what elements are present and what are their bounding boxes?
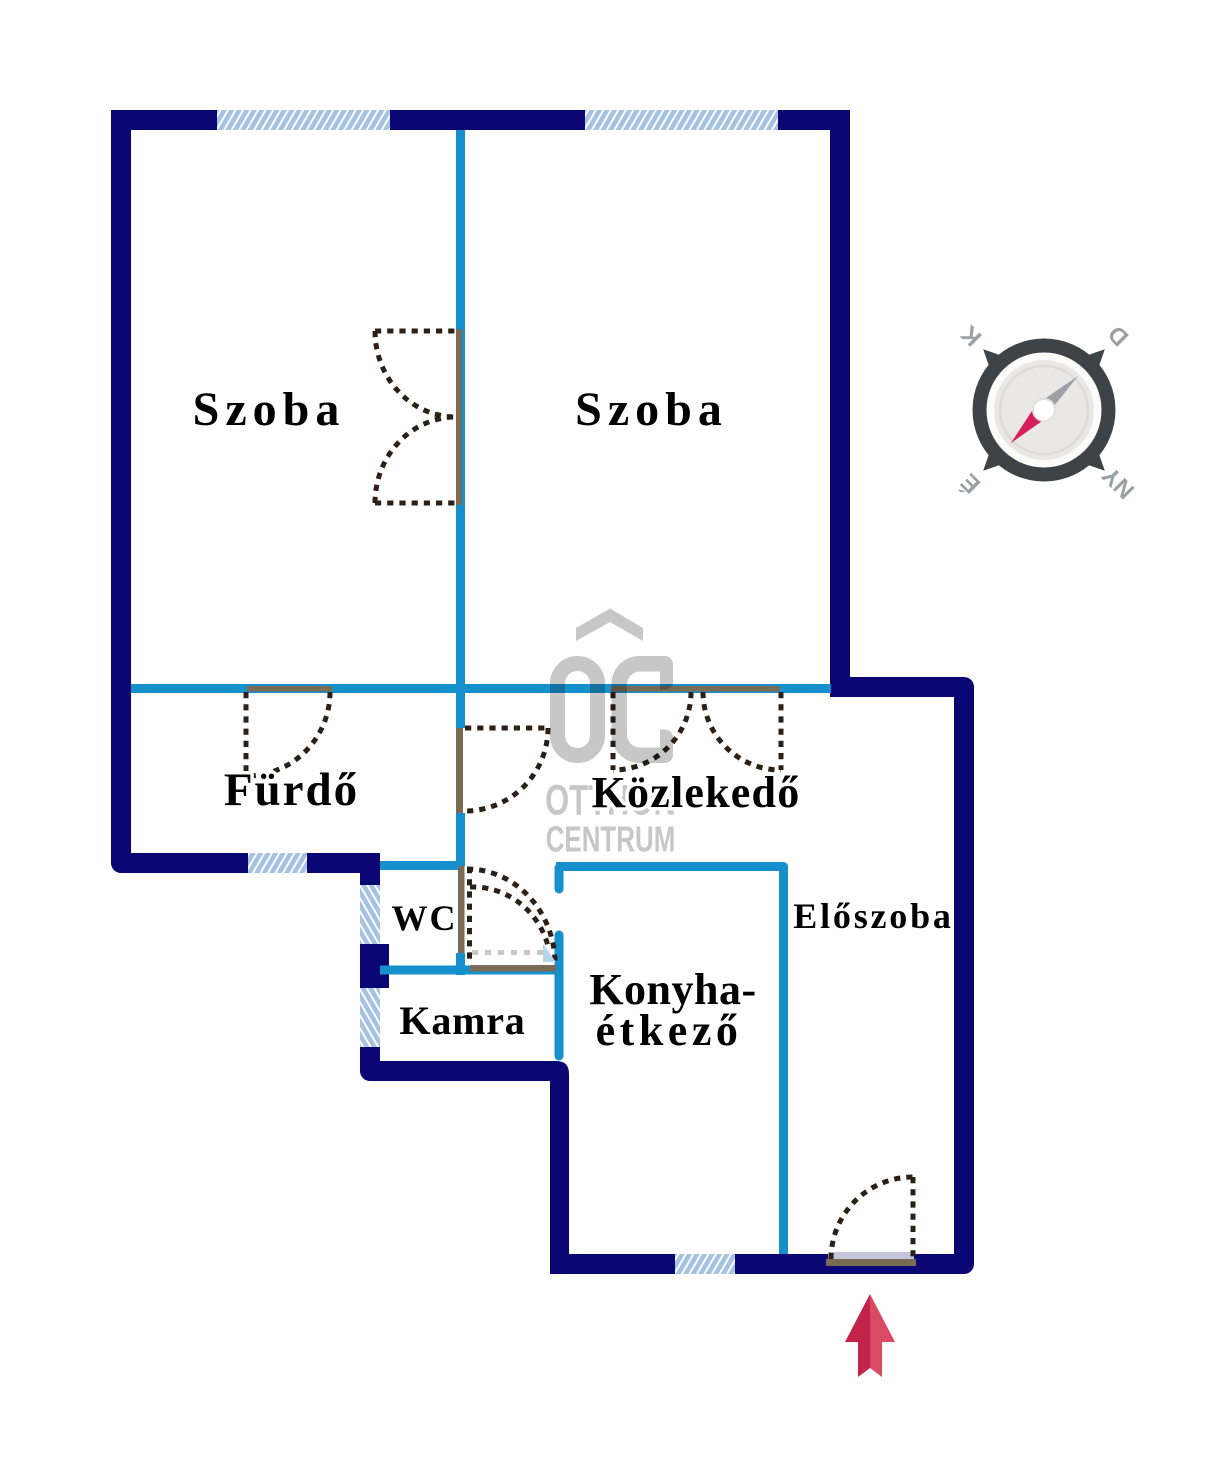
svg-text:Fürdő: Fürdő	[224, 764, 359, 816]
svg-text:Szoba: Szoba	[575, 383, 728, 436]
svg-text:CENTRUM: CENTRUM	[546, 819, 676, 859]
svg-text:étkező: étkező	[596, 1006, 743, 1055]
svg-text:WC: WC	[392, 898, 458, 938]
svg-text:Közlekedő: Közlekedő	[592, 768, 801, 817]
svg-text:Szoba: Szoba	[193, 383, 346, 436]
svg-text:Előszoba: Előszoba	[793, 896, 953, 936]
svg-text:Kamra: Kamra	[399, 998, 525, 1043]
